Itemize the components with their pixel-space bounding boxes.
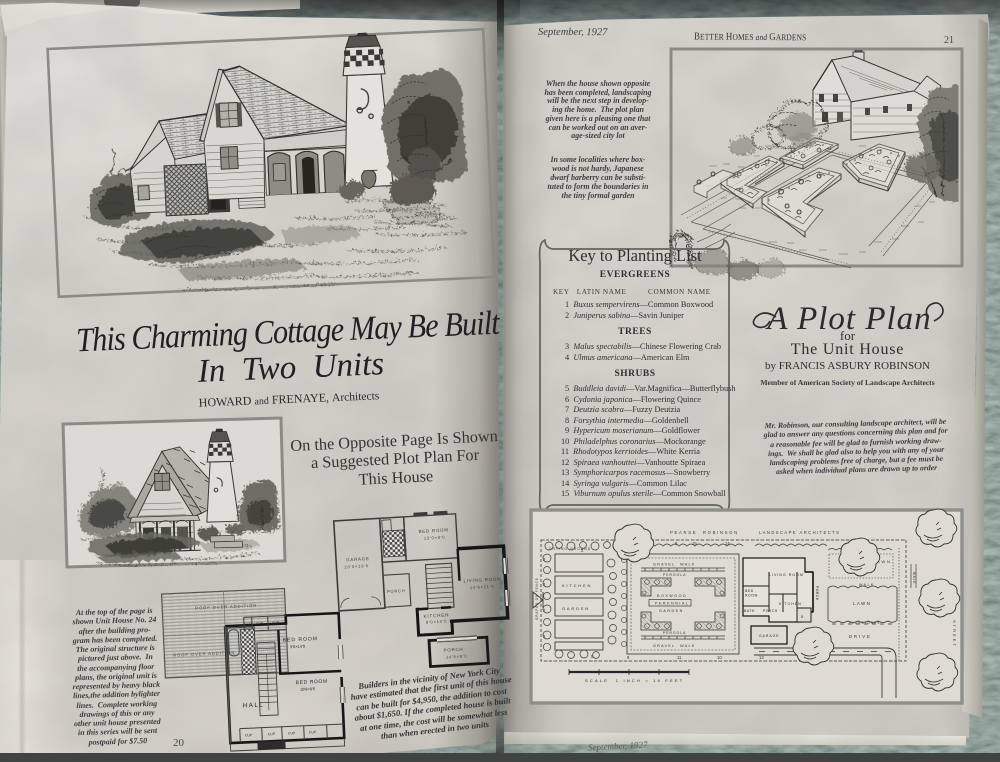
svg-text:13: 13	[759, 655, 764, 660]
svg-text:PERGOLA: PERGOLA	[663, 573, 686, 577]
svg-text:BED: BED	[745, 589, 754, 593]
svg-text:CUP: CUP	[244, 622, 252, 626]
svg-text:5: 5	[801, 614, 804, 619]
svg-text:PORCH: PORCH	[443, 647, 463, 653]
svg-text:9'0×14'0: 9'0×14'0	[290, 644, 306, 650]
svg-text:KITCHEN: KITCHEN	[562, 583, 592, 588]
svg-text:15: 15	[692, 541, 697, 546]
svg-text:DRIVE: DRIVE	[849, 634, 872, 639]
svg-text:CUP: CUP	[288, 731, 296, 735]
svg-text:14'6×8'0: 14'6×8'0	[446, 653, 468, 659]
svg-text:BED ROOM: BED ROOM	[296, 679, 328, 686]
svg-text:ROOM: ROOM	[745, 594, 758, 598]
svg-text:10: 10	[717, 655, 722, 660]
svg-text:CUP: CUP	[272, 621, 280, 625]
svg-text:LAWN: LAWN	[853, 601, 871, 606]
svg-text:8'0×10'0: 8'0×10'0	[426, 619, 448, 625]
svg-text:20'0×18'0: 20'0×18'0	[344, 563, 369, 569]
svg-text:BED ROOM: BED ROOM	[283, 636, 318, 644]
svg-text:CUP: CUP	[268, 732, 276, 736]
svg-text:GRAPES ON FENCE: GRAPES ON FENCE	[535, 577, 539, 620]
svg-text:10'6×9'6: 10'6×9'6	[300, 686, 316, 692]
svg-text:BED ROOM: BED ROOM	[418, 527, 449, 534]
svg-text:LIVING ROOM: LIVING ROOM	[463, 576, 501, 583]
svg-text:GRAVEL WALK: GRAVEL WALK	[653, 644, 696, 648]
svg-text:PEARSE ROBINSON: PEARSE ROBINSON	[670, 530, 739, 535]
svg-text:WALK: WALK	[859, 583, 875, 587]
svg-text:CUP: CUP	[256, 621, 264, 625]
svg-text:BOXWOOD: BOXWOOD	[657, 594, 687, 598]
svg-text:PORCH: PORCH	[387, 588, 406, 594]
svg-text:CUP: CUP	[245, 733, 253, 737]
svg-text:GARDEN: GARDEN	[562, 606, 590, 611]
svg-text:13'0×8'0: 13'0×8'0	[424, 534, 446, 540]
svg-text:GARAGE: GARAGE	[759, 634, 780, 638]
svg-text:SCALE 1 INCH = 16 FEET: SCALE 1 INCH = 16 FEET	[585, 678, 684, 683]
svg-text:14'6×21'0: 14'6×21'0	[470, 584, 495, 590]
svg-text:CUP: CUP	[309, 730, 317, 734]
svg-text:WALK: WALK	[912, 572, 916, 584]
svg-text:PORCH: PORCH	[763, 609, 778, 613]
svg-text:HALL: HALL	[243, 702, 265, 710]
svg-text:GARDEN: GARDEN	[659, 609, 684, 613]
svg-text:PORCH: PORCH	[815, 586, 819, 601]
svg-text:STREET: STREET	[952, 620, 957, 648]
svg-text:14: 14	[725, 541, 730, 546]
svg-text:FLAGSTONES: FLAGSTONES	[849, 621, 880, 625]
svg-text:LANDSCAPE ARCHITECTS: LANDSCAPE ARCHITECTS	[759, 530, 840, 535]
svg-text:DRYING GROUND: DRYING GROUND	[549, 547, 591, 551]
svg-text:PERENNIAL: PERENNIAL	[655, 602, 689, 606]
svg-text:PERGOLA: PERGOLA	[663, 631, 686, 635]
svg-text:LIVING ROOM: LIVING ROOM	[769, 573, 804, 577]
svg-text:GRAVEL WALK: GRAVEL WALK	[653, 563, 696, 567]
svg-text:BATH: BATH	[744, 609, 755, 613]
svg-text:KITCHEN: KITCHEN	[779, 602, 802, 606]
svg-text:11: 11	[677, 655, 682, 660]
svg-text:GARAGE: GARAGE	[346, 556, 370, 562]
